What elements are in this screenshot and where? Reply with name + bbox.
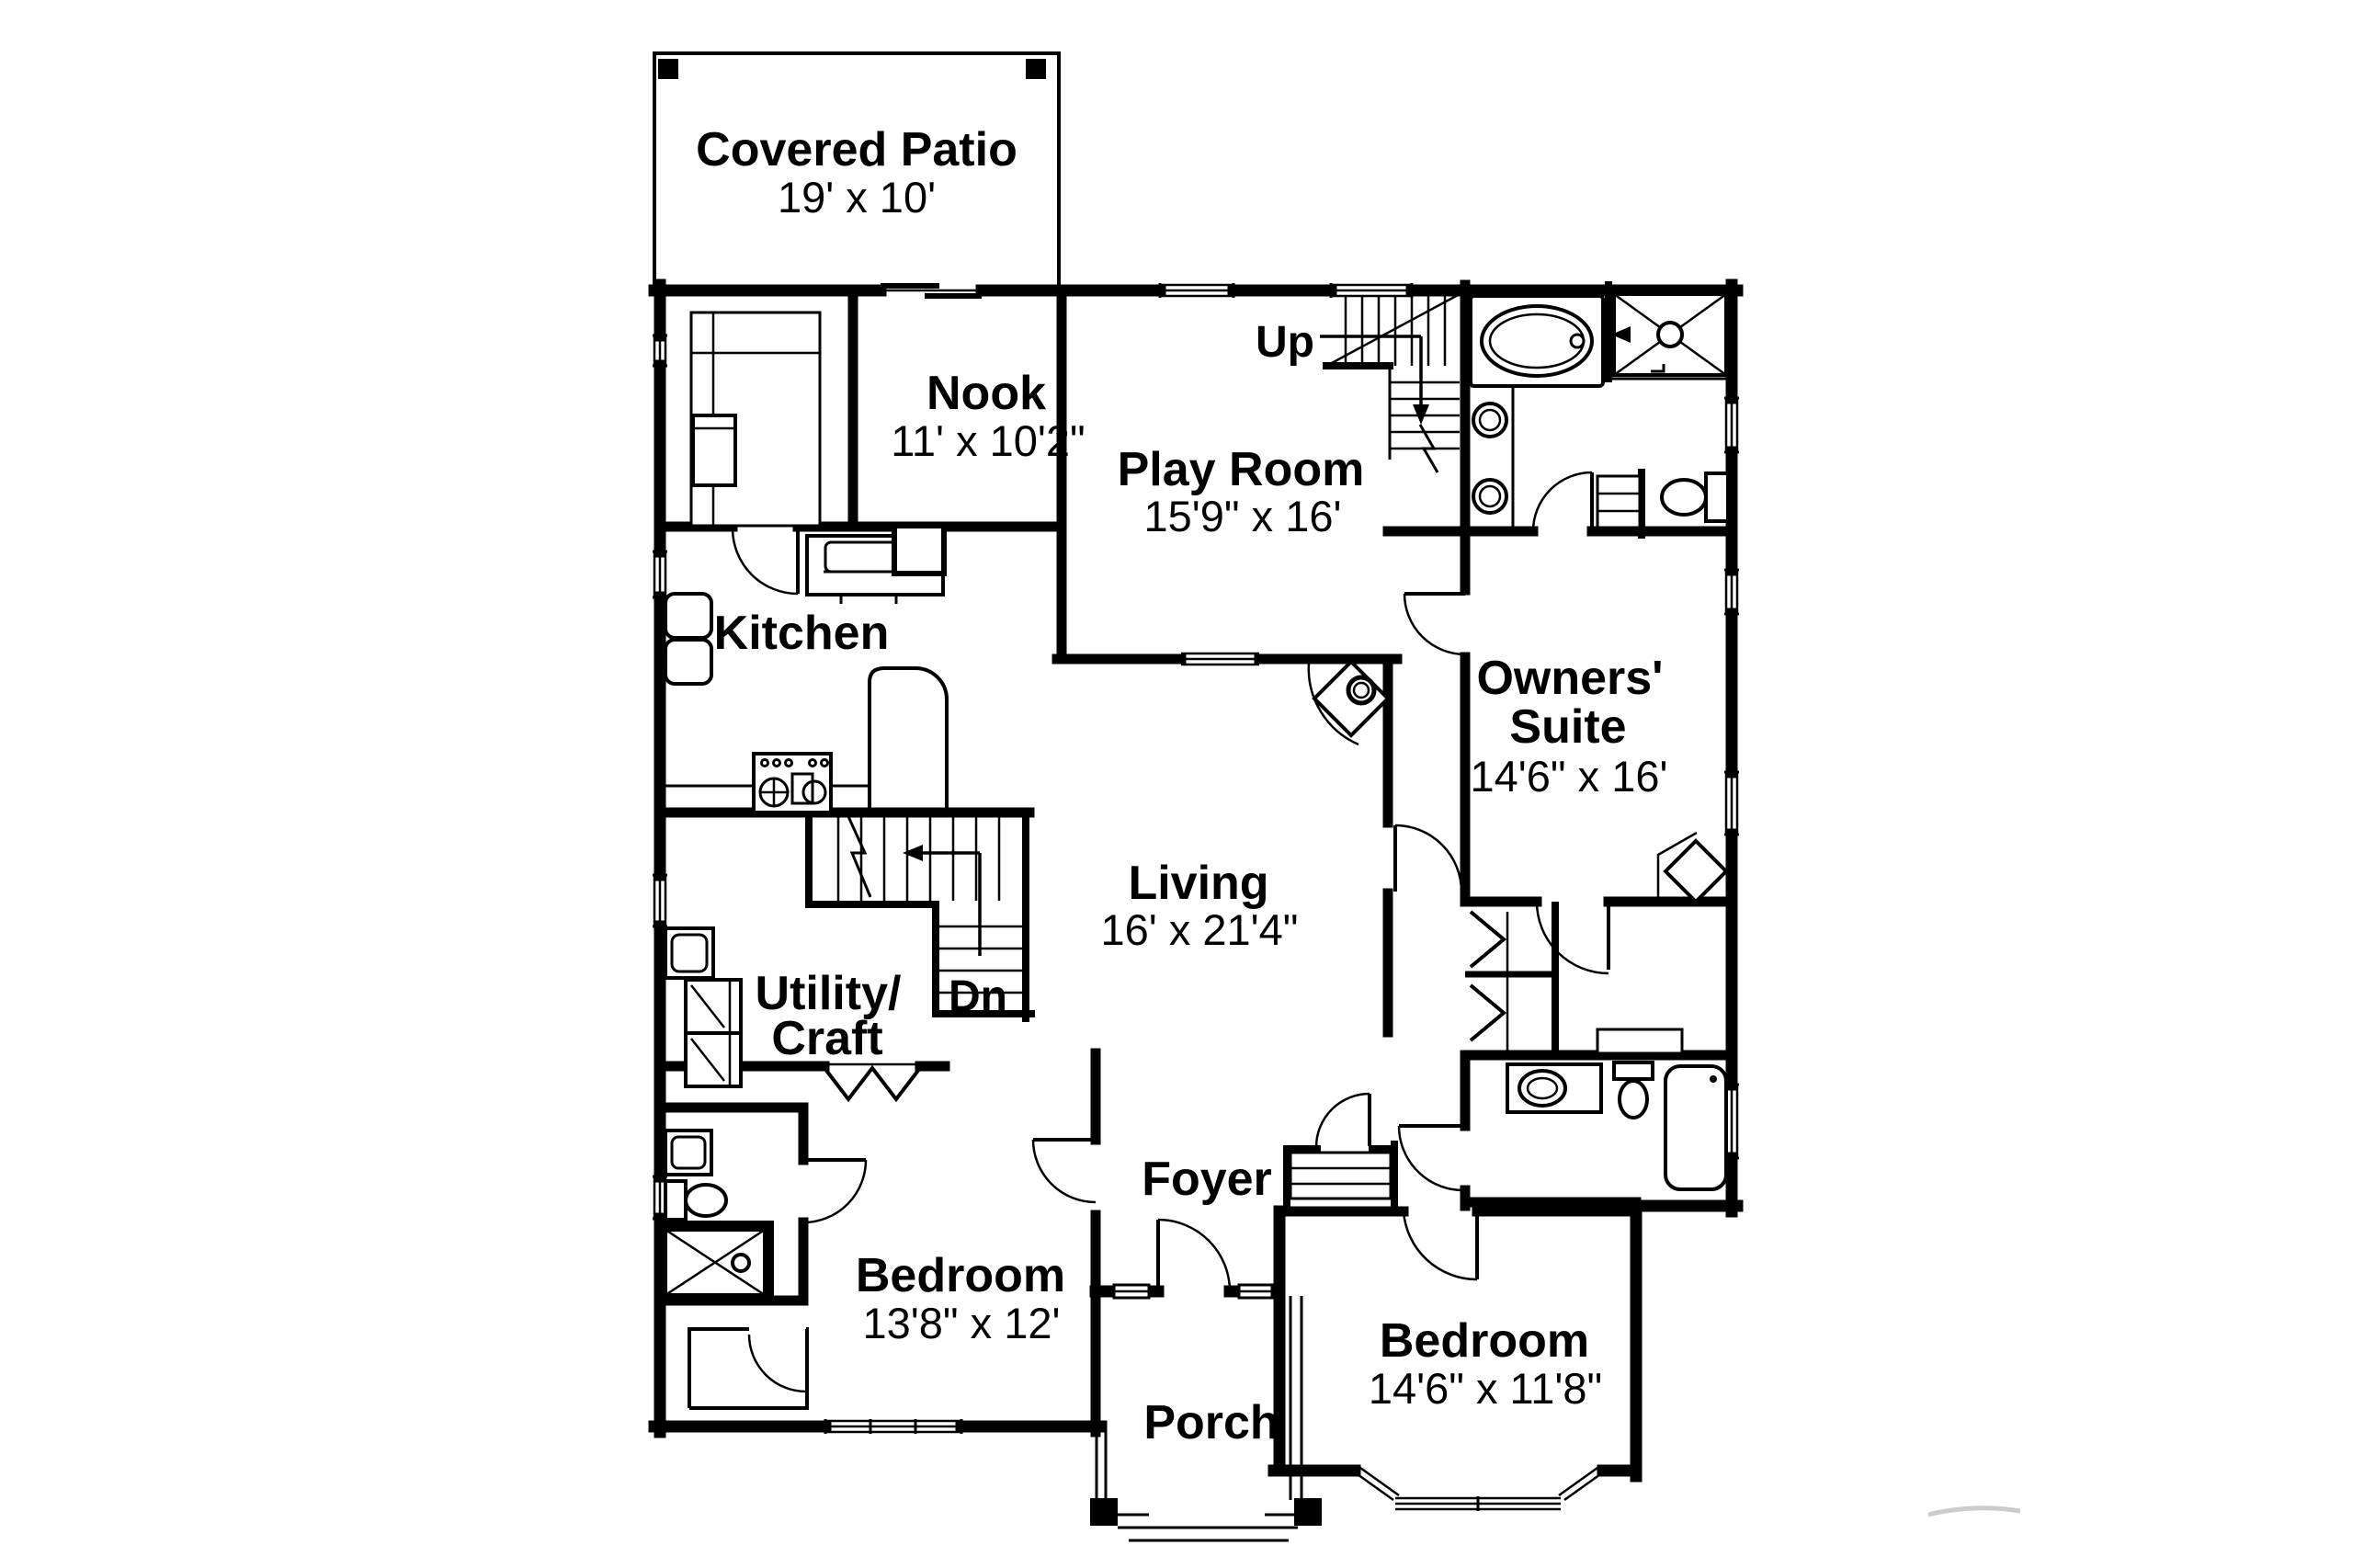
- sidelite-icon: [1114, 1285, 1149, 1298]
- front-door: [1158, 1220, 1230, 1291]
- sliding-door-icon: [881, 286, 982, 296]
- toilet-icon: [1614, 1062, 1653, 1118]
- media-niche-icon: [1658, 833, 1726, 902]
- label-stairs-up: Up: [1256, 318, 1314, 367]
- bifold-closet-b: [1471, 985, 1504, 1040]
- dims-living: 16' x 21'4": [1101, 905, 1299, 954]
- bathtub-icon: [1665, 1066, 1726, 1189]
- window-icon: [1724, 398, 1739, 452]
- dims-bedroom-right: 14'6" x 11'8": [1369, 1364, 1602, 1413]
- sidelite-icon: [1239, 1285, 1272, 1298]
- label-porch: Porch: [1143, 1396, 1279, 1449]
- label-bedroom-left: Bedroom: [856, 1249, 1065, 1302]
- label-nook: Nook: [926, 367, 1046, 420]
- label-covered-patio: Covered Patio: [696, 123, 1017, 176]
- label-play-room: Play Room: [1118, 443, 1365, 496]
- label-kitchen: Kitchen: [714, 607, 890, 660]
- utility-sink-icon: [665, 928, 713, 978]
- door-owners-suite: [1404, 594, 1465, 654]
- door-pantry-kitchen: [733, 528, 798, 594]
- door-bedroom-left: [1033, 1140, 1096, 1202]
- patio-post-icon: [658, 59, 678, 79]
- linen-shelf-icon: [1597, 476, 1640, 528]
- print-artifact: [1928, 1508, 2020, 1515]
- kitchen-peninsula: [870, 668, 947, 812]
- label-owners-suite-1: Owners': [1476, 652, 1663, 705]
- floorplan-drawing: Covered Patio 19' x 10' Nook 11' x 10'2"…: [0, 0, 2353, 1568]
- label-foyer: Foyer: [1142, 1153, 1272, 1206]
- door-master-bath: [1533, 472, 1592, 531]
- cased-opening: [1181, 653, 1259, 665]
- shower-icon: [665, 1230, 765, 1295]
- window-icon: [825, 1419, 961, 1434]
- window-icon: [653, 335, 667, 366]
- door-left-closet: [749, 1335, 806, 1392]
- cooktop-island-icon: [894, 526, 944, 574]
- door-coat-closet: [1316, 1094, 1370, 1147]
- closet-icon: [689, 1329, 807, 1408]
- washer-icon: [686, 980, 741, 1033]
- window-icon: [1331, 283, 1412, 298]
- bifold-closet-hall: [824, 1064, 920, 1099]
- window-icon: [1724, 772, 1739, 835]
- fireplace-icon: [1309, 662, 1388, 744]
- vanity-sinks-icon: [1471, 386, 1513, 531]
- dims-play-room: 15'9" x 16': [1144, 492, 1342, 540]
- bifold-closet-a: [1471, 912, 1504, 967]
- bathtub-icon: [1471, 296, 1603, 386]
- door-hall-bath: [1399, 1126, 1465, 1190]
- floorplan-canvas: Covered Patio 19' x 10' Nook 11' x 10'2"…: [0, 0, 2353, 1568]
- dims-nook: 11' x 10'2": [891, 416, 1085, 465]
- dims-bedroom-left: 13'8" x 12': [863, 1299, 1061, 1347]
- label-stairs-down: Dn: [949, 972, 1007, 1021]
- window-icon: [653, 551, 667, 597]
- label-utility-2: Craft: [771, 1012, 882, 1065]
- label-bedroom-right: Bedroom: [1380, 1314, 1589, 1368]
- stove-icon: [754, 754, 831, 812]
- toilet-icon: [665, 1181, 726, 1220]
- window-icon: [1160, 283, 1233, 298]
- dims-owners-suite: 14'6" x 16': [1471, 752, 1668, 801]
- dims-covered-patio: 19' x 10': [778, 173, 936, 222]
- dryer-icon: [686, 1033, 741, 1086]
- door-bedroom-right: [1404, 1211, 1477, 1279]
- closet-shelf-icon: [1290, 1153, 1391, 1199]
- door-living-hall: [1395, 825, 1461, 892]
- closet-shelf-icon: [1507, 912, 1682, 1053]
- door-walkin-closet: [1537, 902, 1608, 973]
- pantry-cabinets-icon: [691, 312, 820, 526]
- door-left-bath: [803, 1160, 866, 1222]
- window-icon: [1724, 570, 1739, 614]
- toilet-icon: [1662, 473, 1728, 521]
- label-living: Living: [1128, 857, 1268, 910]
- window-icon: [653, 875, 667, 926]
- patio-post-icon: [1026, 59, 1046, 79]
- porch-post-icon: [1090, 1498, 1118, 1526]
- bay-window-icon: [1355, 1468, 1603, 1511]
- fridge-icon: [665, 594, 711, 684]
- sink-icon: [665, 1131, 711, 1175]
- porch-post-icon: [1294, 1498, 1322, 1526]
- vanity-sink-icon: [1507, 1064, 1601, 1112]
- shower-icon: [1608, 285, 1732, 379]
- label-owners-suite-2: Suite: [1509, 700, 1626, 754]
